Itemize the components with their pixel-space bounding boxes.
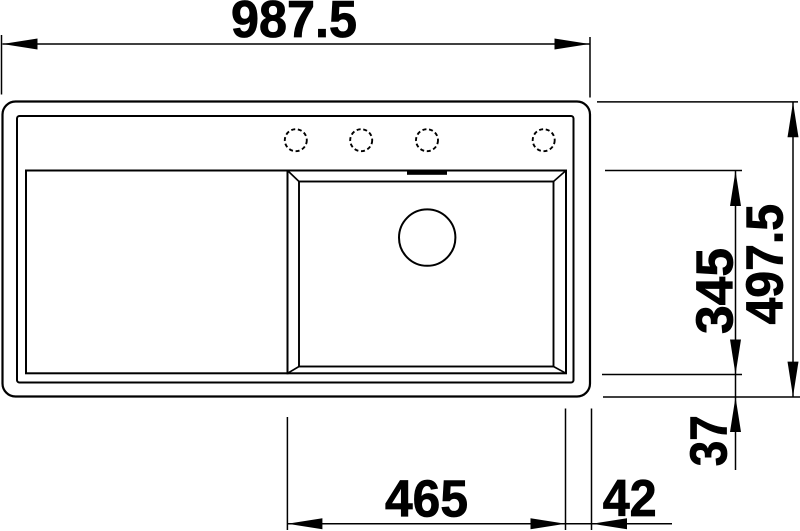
svg-text:42: 42: [603, 470, 657, 528]
svg-text:37: 37: [681, 415, 739, 466]
svg-text:345: 345: [687, 248, 745, 334]
svg-text:497.5: 497.5: [737, 204, 795, 325]
svg-text:987.5: 987.5: [231, 0, 357, 49]
svg-text:465: 465: [385, 470, 468, 528]
